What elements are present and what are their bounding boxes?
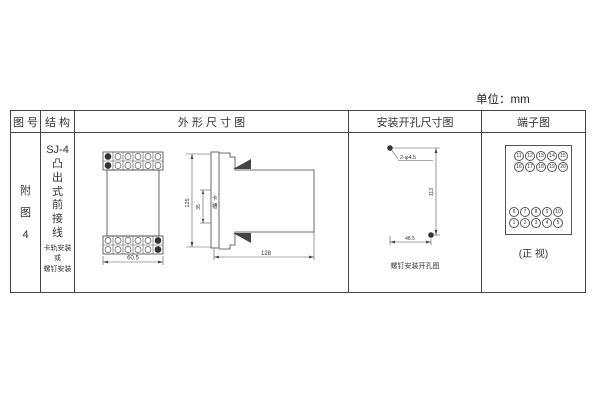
page-root: 单位：mm 图 号 附 图 4 结 构 SJ-4 凸 出 式 前 接 线 卡轨安… (0, 0, 600, 400)
mounting-column: 安装开孔尺寸图 2-φ4.5 113 (349, 111, 482, 292)
mounting-h-dim: 48.5 (405, 236, 415, 242)
terminal-row: 16 17 18 19 20 (509, 162, 568, 172)
terminal-caption: (正 视) (482, 245, 585, 260)
side-height-dim: 125 (185, 198, 191, 207)
terminal-circle: 15 (558, 151, 568, 161)
structure-cell: SJ-4 凸 出 式 前 接 线 卡轨安装 或 螺钉安装 (41, 133, 74, 292)
header-terminal: 端子图 (482, 111, 585, 133)
terminal-circle: 8 (531, 207, 541, 217)
front-width-dim: 60.5 (127, 256, 139, 262)
mounting-v-dim: 113 (429, 188, 435, 196)
terminal-column: 端子图 11 12 13 14 15 16 17 (482, 111, 585, 292)
header-outline: 外 形 尺 寸 图 (75, 111, 348, 133)
terminal-circle: 19 (547, 162, 557, 172)
front-bottom-terminal-block (103, 236, 163, 254)
mounting-vertical-dimension: 113 (393, 148, 440, 235)
fig-number-label: 附 图 4 (11, 133, 40, 292)
front-width-dimension: 60.5 (103, 256, 163, 266)
terminal-top-group: 11 12 13 14 15 16 17 18 19 20 (509, 151, 568, 173)
terminal-circle: 2 (520, 218, 530, 228)
terminal-circle: 12 (525, 151, 535, 161)
side-depth-dim: 128 (261, 251, 272, 257)
outline-cell: 60.5 125 (75, 133, 348, 292)
terminal-circle: 1 (509, 218, 519, 228)
front-view-drawing: 60.5 (100, 148, 166, 274)
terminal-row: 6 7 8 9 10 (509, 207, 568, 217)
terminal-row: 11 12 13 14 15 (509, 151, 568, 161)
side-height-dimension: 125 (185, 154, 211, 247)
side-depth-dimension: 128 (214, 232, 314, 260)
terminal-circle: 17 (525, 162, 535, 172)
hole-diameter-label: 2-φ4.5 (400, 155, 416, 161)
terminal-circle: 13 (536, 151, 546, 161)
fig-number-column: 图 号 附 图 4 (11, 111, 41, 292)
terminal-bottom-group: 6 7 8 9 10 1 2 3 4 5 (509, 207, 568, 229)
front-top-terminal-block (103, 152, 163, 170)
terminal-circle: 18 (536, 162, 546, 172)
terminal-circle: 7 (520, 207, 530, 217)
side-view-drawing: 125 35 (183, 145, 323, 267)
top-rail-clip (233, 159, 251, 169)
slot-dim: 35 (196, 204, 202, 210)
header-structure: 结 构 (41, 111, 74, 133)
outline-column: 外 形 尺 寸 图 (75, 111, 349, 292)
terminal-circle: 16 (514, 162, 524, 172)
dimension-table: 图 号 附 图 4 结 构 SJ-4 凸 出 式 前 接 线 卡轨安装 或 螺钉… (10, 110, 586, 293)
bottom-rail-clip (233, 233, 251, 243)
mount-note-label: 卡轨安装 或 螺钉安装 (44, 244, 72, 276)
header-fig-no: 图 号 (11, 111, 40, 133)
terminal-circle: 14 (547, 151, 557, 161)
header-mounting: 安装开孔尺寸图 (349, 111, 481, 133)
terminal-circle: 6 (509, 207, 519, 217)
mounting-hole-bottom (428, 232, 434, 238)
slot-dimension: 35 (196, 190, 211, 223)
terminal-row: 1 2 3 4 5 (509, 218, 568, 228)
slot-label: 卡 槽 (212, 195, 218, 212)
model-label: SJ-4 (46, 144, 69, 156)
side-body-outline (219, 153, 314, 249)
terminal-circle: 3 (531, 218, 541, 228)
terminal-panel: 11 12 13 14 15 16 17 18 19 20 (505, 145, 572, 235)
terminal-circle: 5 (553, 218, 563, 228)
terminal-circle: 9 (542, 207, 552, 217)
terminal-circle: 11 (514, 151, 524, 161)
terminal-circle: 4 (542, 218, 552, 228)
structure-column: 结 构 SJ-4 凸 出 式 前 接 线 卡轨安装 或 螺钉安装 (41, 111, 75, 292)
units-label: 单位：mm (476, 91, 530, 107)
mounting-horizontal-dimension: 48.5 (390, 236, 431, 245)
front-body (107, 170, 159, 236)
fig-number-cell: 附 图 4 (11, 133, 40, 292)
mounting-cell: 2-φ4.5 113 (349, 133, 481, 292)
terminal-circle: 10 (553, 207, 563, 217)
mounting-drawing: 2-φ4.5 113 (357, 140, 472, 260)
terminal-circle: 20 (558, 162, 568, 172)
terminal-cell: 11 12 13 14 15 16 17 18 19 20 (482, 133, 585, 292)
mounting-caption: 螺钉安装开孔图 (349, 261, 481, 271)
structure-type-label: 凸 出 式 前 接 线 (52, 158, 63, 241)
